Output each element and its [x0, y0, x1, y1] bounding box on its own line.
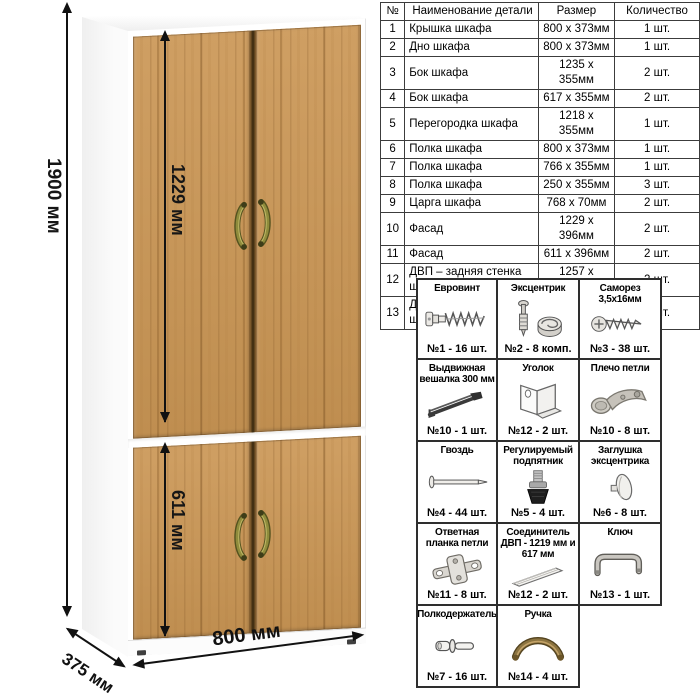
table-row: 7Полка шкафа766 x 355мм1 шт.: [381, 159, 700, 177]
hardware-item: Саморез 3,5х16мм №3 - 38 шт.: [578, 278, 662, 360]
part-size: 1218 x 355мм: [538, 108, 614, 141]
hardware-qty: №13 - 1 шт.: [590, 589, 650, 604]
arrowhead-icon: [63, 624, 79, 639]
hardware-qty: №11 - 8 шт.: [427, 589, 487, 604]
part-size: 1235 x 355мм: [538, 57, 614, 90]
part-size: 766 x 355мм: [538, 159, 614, 177]
hardware-item: Выдвижная вешалка 300 мм №10 - 1 шт.: [416, 358, 498, 442]
part-qty: 2 шт.: [615, 90, 700, 108]
hdf-connector-icon: [498, 560, 578, 589]
hardware-qty: №3 - 38 шт.: [590, 343, 650, 358]
handle-icon: [498, 620, 578, 671]
header-name: Наименование детали: [405, 3, 539, 21]
pullout-hanger-icon: [418, 385, 496, 425]
euro-screw-icon: [418, 294, 496, 343]
arrowhead-icon: [62, 606, 72, 617]
table-row: 2Дно шкафа800 x 373мм1 шт.: [381, 39, 700, 57]
door-handle-icon: [233, 512, 247, 563]
part-name: Царга шкафа: [405, 195, 539, 213]
hardware-title: Ответная планка петли: [418, 524, 496, 549]
hardware-item: Ответная планка петли №11 - 8 шт.: [416, 522, 498, 606]
upper-facade-dimension-line: [164, 34, 166, 422]
hardware-qty: №10 - 8 шт.: [590, 425, 650, 440]
hardware-title: Регулируемый подпятник: [498, 442, 578, 467]
part-number: 8: [381, 177, 405, 195]
part-size: 768 x 70мм: [538, 195, 614, 213]
part-size: 250 x 355мм: [538, 177, 614, 195]
hardware-qty: №14 - 4 шт.: [508, 671, 568, 686]
hardware-title: Соединитель ДВП - 1219 мм и 617 мм: [498, 524, 578, 560]
hardware-grid: Евровинт №1 - 16 шт. Эксцентрик: [416, 278, 664, 688]
part-name: Бок шкафа: [405, 90, 539, 108]
table-row: 10Фасад1229 x 396мм2 шт.: [381, 213, 700, 246]
hardware-title: Евровинт: [433, 280, 481, 294]
hardware-item: Гвоздь №4 - 44 шт.: [416, 440, 498, 524]
part-size: 800 x 373мм: [538, 39, 614, 57]
height-dimension-line: [66, 9, 68, 615]
part-qty: 1 шт.: [615, 159, 700, 177]
table-row: 6Полка шкафа800 x 373мм1 шт.: [381, 141, 700, 159]
part-number: 3: [381, 57, 405, 90]
part-size: 611 x 396мм: [538, 246, 614, 264]
part-qty: 3 шт.: [615, 177, 700, 195]
height-dimension-label: 1900 мм: [42, 158, 64, 234]
hardware-qty: №7 - 16 шт.: [427, 671, 487, 686]
hex-key-icon: [580, 538, 660, 589]
part-qty: 2 шт.: [615, 195, 700, 213]
cam-cap-icon: [580, 467, 660, 507]
nail-icon: [418, 456, 496, 507]
hardware-item: Ручка №14 - 4 шт.: [496, 604, 580, 688]
eccentric-cam-icon: [498, 294, 578, 343]
hardware-item: Эксцентрик №2 - 8 комп.: [496, 278, 580, 360]
hardware-title: Гвоздь: [439, 442, 474, 456]
hardware-title: Эксцентрик: [510, 280, 566, 294]
arrowhead-icon: [160, 30, 170, 41]
upper-facade-dimension-label: 1229 мм: [167, 164, 188, 236]
assembly-scheme: 1900 мм 1229 мм 611 мм 800 мм 375 мм № Н…: [0, 0, 700, 700]
table-row: 5Перегородка шкафа1218 x 355мм1 шт.: [381, 108, 700, 141]
part-size: 800 x 373мм: [538, 21, 614, 39]
part-number: 11: [381, 246, 405, 264]
part-qty: 1 шт.: [615, 21, 700, 39]
part-number: 5: [381, 108, 405, 141]
hardware-item: Соединитель ДВП - 1219 мм и 617 мм №12 -…: [496, 522, 580, 606]
shelf-pin-icon: [418, 620, 496, 671]
hardware-qty: №6 - 8 шт.: [593, 507, 647, 522]
hardware-title: Ключ: [606, 524, 633, 538]
header-qty: Количество: [615, 3, 700, 21]
part-number: 7: [381, 159, 405, 177]
hinge-plate-icon: [418, 549, 496, 589]
arrowhead-icon: [113, 657, 129, 672]
part-number: 4: [381, 90, 405, 108]
hardware-qty: №5 - 4 шт.: [511, 507, 565, 522]
door-handle-icon: [258, 508, 272, 559]
hardware-title: Заглушка эксцентрика: [580, 442, 660, 467]
hardware-title: Выдвижная вешалка 300 мм: [418, 360, 496, 385]
part-number: 13: [381, 297, 405, 330]
arrowhead-icon: [160, 412, 170, 423]
hardware-qty: №4 - 44 шт.: [427, 507, 487, 522]
part-name: Дно шкафа: [405, 39, 539, 57]
hardware-qty: №2 - 8 комп.: [504, 343, 571, 358]
hardware-item: Регулируемый подпятник №5 - 4 шт.: [496, 440, 580, 524]
hardware-item: Полкодержатель №7 - 16 шт.: [416, 604, 498, 688]
part-number: 6: [381, 141, 405, 159]
part-number: 10: [381, 213, 405, 246]
part-qty: 2 шт.: [615, 213, 700, 246]
lower-facade-dimension-line: [164, 446, 166, 636]
hardware-item: Ключ №13 - 1 шт.: [578, 522, 662, 606]
hardware-title: Полкодержатель: [416, 606, 498, 620]
arrowhead-icon: [62, 2, 72, 13]
hardware-item: Плечо петли №10 - 8 шт.: [578, 358, 662, 442]
part-number: 9: [381, 195, 405, 213]
table-row: 4Бок шкафа617 x 355мм2 шт.: [381, 90, 700, 108]
part-size: 1229 x 396мм: [538, 213, 614, 246]
self-tapping-screw-icon: [580, 305, 660, 343]
part-qty: 2 шт.: [615, 246, 700, 264]
lower-facade-dimension-label: 611 мм: [167, 490, 188, 551]
hardware-title: Плечо петли: [590, 360, 651, 374]
part-number: 1: [381, 21, 405, 39]
part-name: Полка шкафа: [405, 141, 539, 159]
hardware-qty: №1 - 16 шт.: [427, 343, 487, 358]
hardware-title: Ручка: [523, 606, 552, 620]
header-size: Размер: [538, 3, 614, 21]
hardware-title: Саморез 3,5х16мм: [580, 280, 660, 305]
table-row: 9Царга шкафа768 x 70мм2 шт.: [381, 195, 700, 213]
table-row: 3Бок шкафа1235 x 355мм2 шт.: [381, 57, 700, 90]
part-name: Перегородка шкафа: [405, 108, 539, 141]
part-number: 12: [381, 264, 405, 297]
parts-table-header: № Наименование детали Размер Количество: [381, 3, 700, 21]
hardware-title: Уголок: [521, 360, 554, 374]
part-qty: 1 шт.: [615, 141, 700, 159]
door-handle-icon: [258, 197, 272, 248]
part-qty: 1 шт.: [615, 39, 700, 57]
adjustable-foot-icon: [498, 467, 578, 507]
part-qty: 1 шт.: [615, 108, 700, 141]
hardware-item: Уголок №12 - 2 шт.: [496, 358, 580, 442]
part-size: 800 x 373мм: [538, 141, 614, 159]
hardware-qty: №12 - 2 шт.: [508, 425, 568, 440]
hinge-arm-icon: [580, 374, 660, 425]
part-name: Бок шкафа: [405, 57, 539, 90]
door-handle-icon: [233, 201, 247, 252]
table-row: 11Фасад611 x 396мм2 шт.: [381, 246, 700, 264]
table-row: 1Крышка шкафа800 x 373мм1 шт.: [381, 21, 700, 39]
part-qty: 2 шт.: [615, 57, 700, 90]
hardware-qty: №12 - 2 шт.: [508, 589, 568, 604]
table-row: 8Полка шкафа250 x 355мм3 шт.: [381, 177, 700, 195]
hardware-item: Заглушка эксцентрика №6 - 8 шт.: [578, 440, 662, 524]
hardware-item: Евровинт №1 - 16 шт.: [416, 278, 498, 360]
part-size: 617 x 355мм: [538, 90, 614, 108]
corner-bracket-icon: [498, 374, 578, 425]
part-name: Фасад: [405, 246, 539, 264]
part-name: Крышка шкафа: [405, 21, 539, 39]
arrowhead-icon: [160, 442, 170, 453]
wardrobe-side-face: [82, 17, 128, 657]
depth-dimension-label: 375 мм: [47, 642, 128, 700]
part-name: Полка шкафа: [405, 177, 539, 195]
part-name: Фасад: [405, 213, 539, 246]
header-num: №: [381, 3, 405, 21]
hardware-qty: №10 - 1 шт.: [427, 425, 487, 440]
part-name: Полка шкафа: [405, 159, 539, 177]
part-number: 2: [381, 39, 405, 57]
